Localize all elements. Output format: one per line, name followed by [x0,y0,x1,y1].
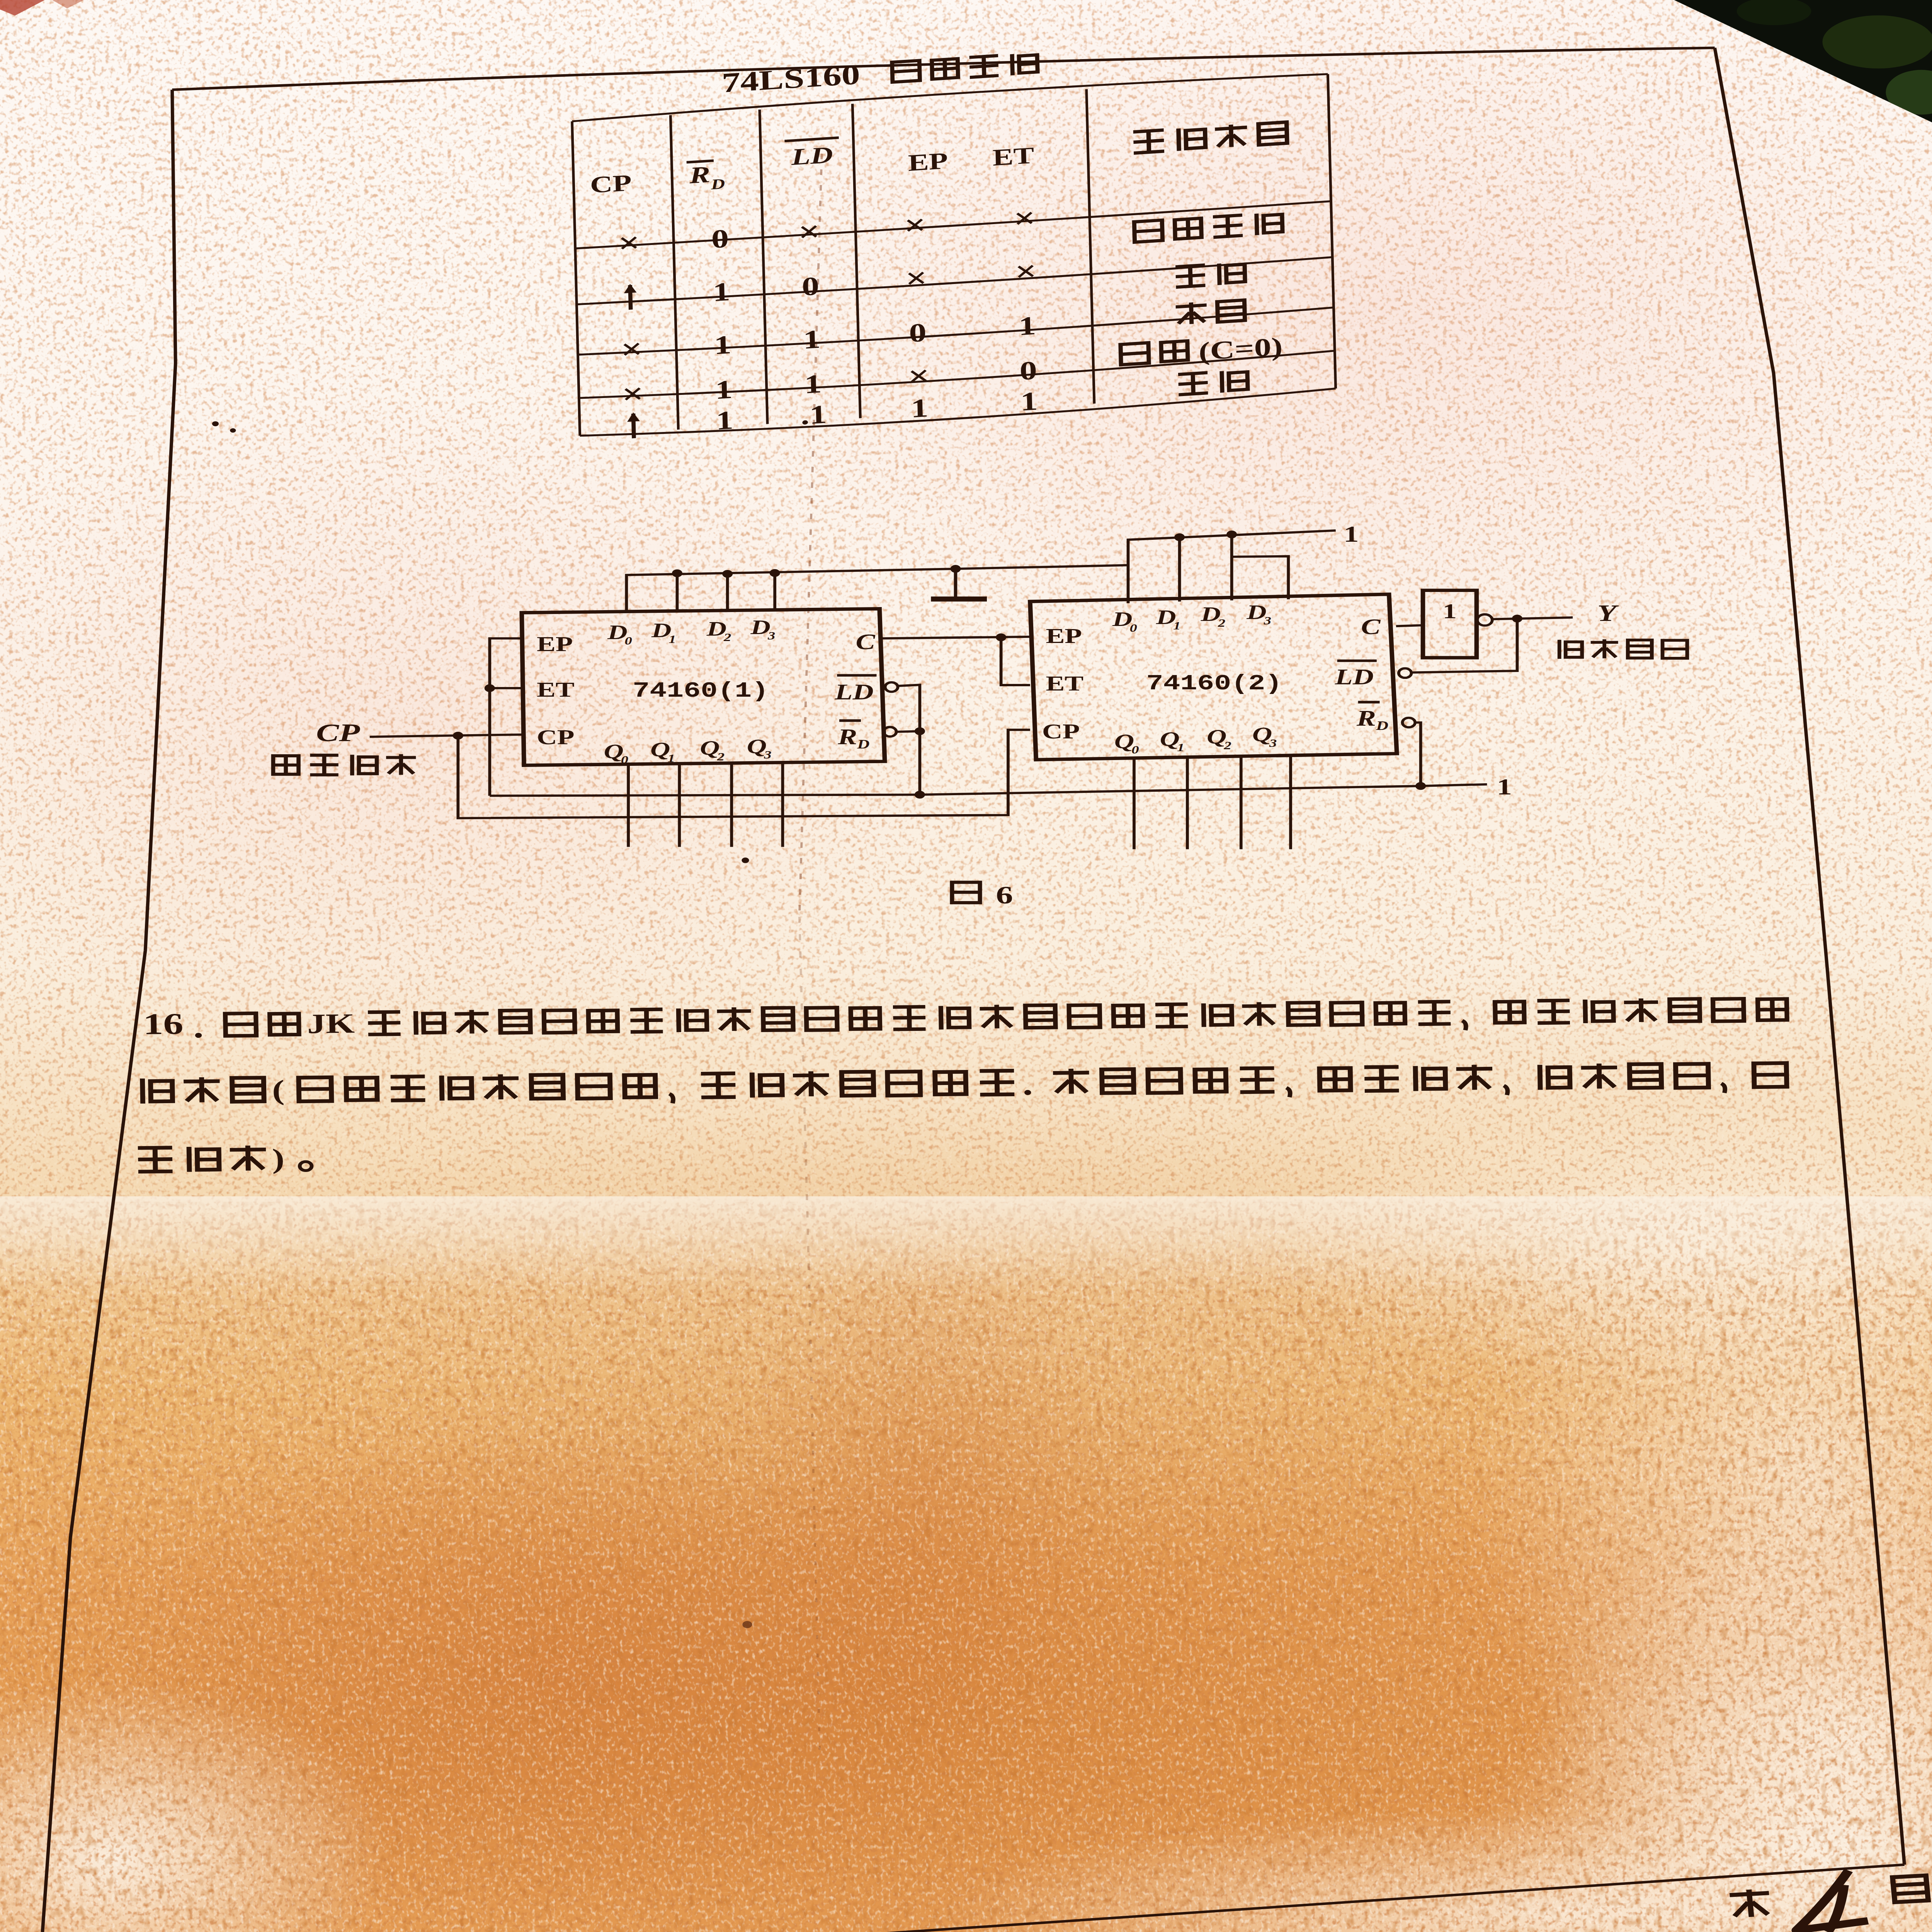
svg-text:D: D [857,737,869,751]
svg-text:LD: LD [791,141,833,170]
svg-text:16: 16 [143,1007,184,1041]
svg-text:1: 1 [668,633,676,645]
svg-text:74160(2): 74160(2) [1146,672,1282,696]
svg-text:×: × [905,261,928,295]
svg-text:1: 1 [803,324,821,354]
svg-text:0: 0 [621,754,628,766]
svg-text:0: 0 [801,271,820,301]
svg-text:0: 0 [908,318,927,348]
svg-text:D: D [710,176,725,193]
svg-text:74160(1): 74160(1) [633,679,769,703]
svg-text:C: C [856,630,876,654]
svg-text:1: 1 [1497,774,1512,799]
svg-text:0: 0 [625,635,632,647]
svg-text:0: 0 [1131,744,1139,756]
svg-text:(C=0): (C=0) [1198,332,1283,366]
svg-text:2: 2 [723,631,731,643]
svg-text:×: × [1014,254,1037,288]
svg-text:): ) [272,1143,285,1174]
svg-text:ET: ET [537,677,575,701]
svg-text:×: × [903,208,926,242]
svg-text:1: 1 [716,405,734,435]
svg-text:1: 1 [1177,742,1184,753]
svg-text:1: 1 [1173,620,1180,632]
svg-text:R: R [689,161,711,189]
svg-text:EP: EP [537,632,573,656]
svg-text:1: 1 [667,752,675,764]
svg-text:1: 1 [910,393,929,423]
svg-text:3: 3 [764,749,771,761]
svg-text:2: 2 [1218,617,1225,629]
svg-text:6: 6 [996,881,1013,909]
svg-text:1: 1 [1344,521,1359,546]
svg-text:R: R [1356,706,1376,730]
svg-text:EP: EP [1046,624,1082,648]
svg-text:×: × [798,215,821,248]
svg-text:3: 3 [767,630,775,642]
svg-text:0: 0 [711,224,729,254]
svg-text:×: × [620,332,643,366]
svg-text:3: 3 [1264,615,1271,627]
svg-text:EP: EP [908,147,948,176]
svg-text:1: 1 [1443,599,1457,623]
svg-text:ET: ET [1046,672,1083,695]
svg-text:3: 3 [1269,737,1277,749]
svg-text:0: 0 [1019,355,1037,386]
svg-text:CP: CP [590,169,632,198]
svg-text:CP: CP [316,718,361,747]
svg-text:1: 1 [714,330,732,360]
svg-text:(: ( [272,1074,285,1105]
svg-text:2: 2 [717,750,724,762]
svg-text:CP: CP [537,725,575,748]
svg-text:Y: Y [1597,600,1619,626]
svg-text:ET: ET [992,142,1034,170]
svg-text:0: 0 [1129,622,1137,634]
svg-text:×: × [617,226,640,260]
svg-text:1: 1 [712,277,730,307]
svg-text:LD: LD [1335,665,1374,689]
svg-text:C: C [1361,615,1381,639]
svg-text:.1: .1 [800,400,827,430]
svg-text:×: × [621,377,644,411]
svg-text:1: 1 [1018,311,1036,341]
svg-text:JK: JK [307,1008,355,1039]
svg-text:1: 1 [804,369,822,399]
svg-text:×: × [1013,201,1036,235]
svg-text:LD: LD [834,680,873,704]
svg-text:2: 2 [1223,739,1231,751]
svg-text:1: 1 [1020,386,1038,417]
svg-text:1: 1 [715,374,733,405]
svg-text:CP: CP [1042,719,1080,743]
svg-text:D: D [1376,719,1388,733]
svg-text:×: × [907,359,930,393]
svg-text:R: R [837,725,857,749]
